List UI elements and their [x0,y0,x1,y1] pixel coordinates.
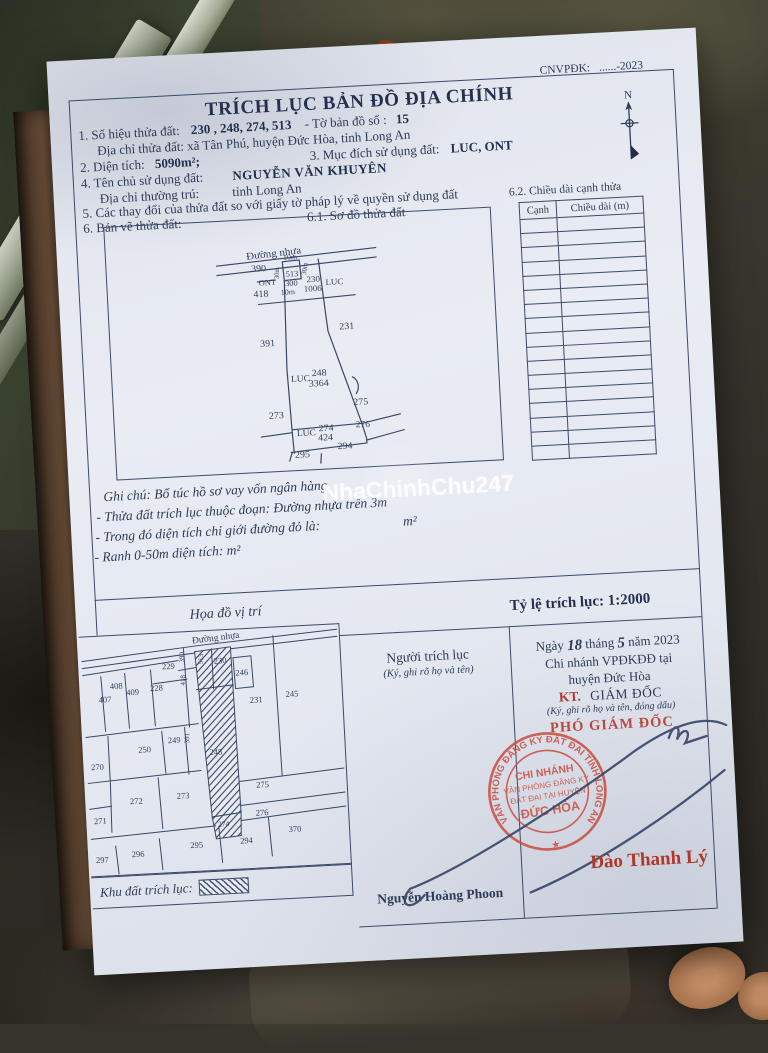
sketch-map: Đường nhựa39010m30m30m513ONT3002301006LU… [104,208,503,480]
parcel-label: 295 [190,840,203,851]
parcel-label: 418 [253,289,269,300]
parcel-label: 294 [337,441,353,452]
owner-name: NGUYỄN VĂN KHUYÊN [232,160,387,183]
side-table: Cạnh Chiều dài (m) [519,196,657,461]
code-value: ......-2023 [599,59,644,73]
parcel-label: 30m [301,262,310,275]
note-3: - Ranh 0-50m diện tích: m² [94,542,241,566]
signature [370,667,742,916]
parcel-label: 249 [168,735,181,746]
parcel-label: 276 [255,807,268,818]
sheet-value: 15 [395,111,409,127]
parcel-label: Đường nhựa [191,631,240,647]
parcel-label: 248 [209,746,222,757]
parcel-label: ONT [258,278,276,288]
parcel-label: 409 [126,687,139,698]
date-day: 18 [567,637,583,654]
parcel-label: 10m [281,287,296,296]
parcel-label: 230 [213,655,226,666]
parcel-label: 370 [288,823,301,834]
legend-label: Khu đất trích lục: [100,880,194,901]
parcel-label: 513 [285,269,298,278]
parcel-label: LUC [325,276,344,287]
parcel-label: 294 [240,835,254,846]
parcel-label: 273 [176,790,189,801]
parcel-label: 275 [353,396,369,407]
parcel-label: 295 [295,449,311,460]
parcel-label: 1006 [304,283,323,294]
parcel-label: 418 [179,674,187,685]
parcel-label: 407 [98,694,111,705]
date-word2: tháng [585,635,615,651]
location-map-box: Đường nhựa229390418513230246407408409228… [79,623,352,878]
compass: N [615,89,645,169]
parcel-label: 271 [94,816,107,827]
watermark-text: NhaChinhChu247 [322,470,515,507]
parcel-label: 245 [285,688,298,699]
parcel-label: 390 [251,263,267,274]
parcel-label: 229 [162,661,175,672]
parcel-label: LUC [297,427,316,438]
parcel-label: 296 [131,849,144,860]
parcel-label: 270 [91,762,104,773]
document-paper: TRÍCH LỤC BẢN ĐỒ ĐỊA CHÍNH CNVPĐK: .....… [47,28,744,976]
parcel-label: 513 [197,653,205,664]
date-word1: Ngày [535,637,564,653]
parcel-label: LUC [291,373,310,384]
location-map: Đường nhựa229390418513230246407408409228… [79,624,351,877]
parcel-label: 231 [339,321,355,332]
parcel-label: 297 [96,854,109,865]
north-arrow-icon [615,101,644,164]
parcel-label: 275 [256,779,269,790]
date-month: 5 [617,635,625,651]
parcel-label: 231 [250,694,263,705]
location-map-title: Họa đồ vị trí [155,602,296,625]
side-table-title: 6.2. Chiều dài cạnh thửa [509,181,622,199]
sketch-map-box: Đường nhựa39010m30m30m513ONT3002301006LU… [103,207,504,481]
legend-hatch-swatch [198,877,249,896]
parcel-label: 390 [178,651,186,662]
date-year: năm 2023 [628,631,680,649]
parcel-label: 272 [130,796,143,807]
scale-label: Tỷ lệ trích lục: 1:2000 [509,591,651,615]
parcel-label: 273 [269,410,285,421]
purpose-value: LUC, ONT [450,137,513,155]
parcel-label: 424 [318,432,334,443]
parcel-label: 246 [235,667,248,678]
area-value: 5090m²; [154,154,200,171]
parcel-label: 10m [283,252,298,261]
parcel-label: 276 [356,419,371,429]
parcel-label: 274 [218,819,230,829]
side-table-col1: Cạnh [519,201,557,220]
parcel-label: 408 [110,681,123,692]
parcel-label: 250 [138,744,151,755]
parcel-label: 391 [260,338,276,349]
parcel-label: 391 [183,732,191,743]
parcel-label: 228 [150,682,163,693]
parcel-label: 3364 [308,378,329,390]
side-table-body [520,213,656,460]
